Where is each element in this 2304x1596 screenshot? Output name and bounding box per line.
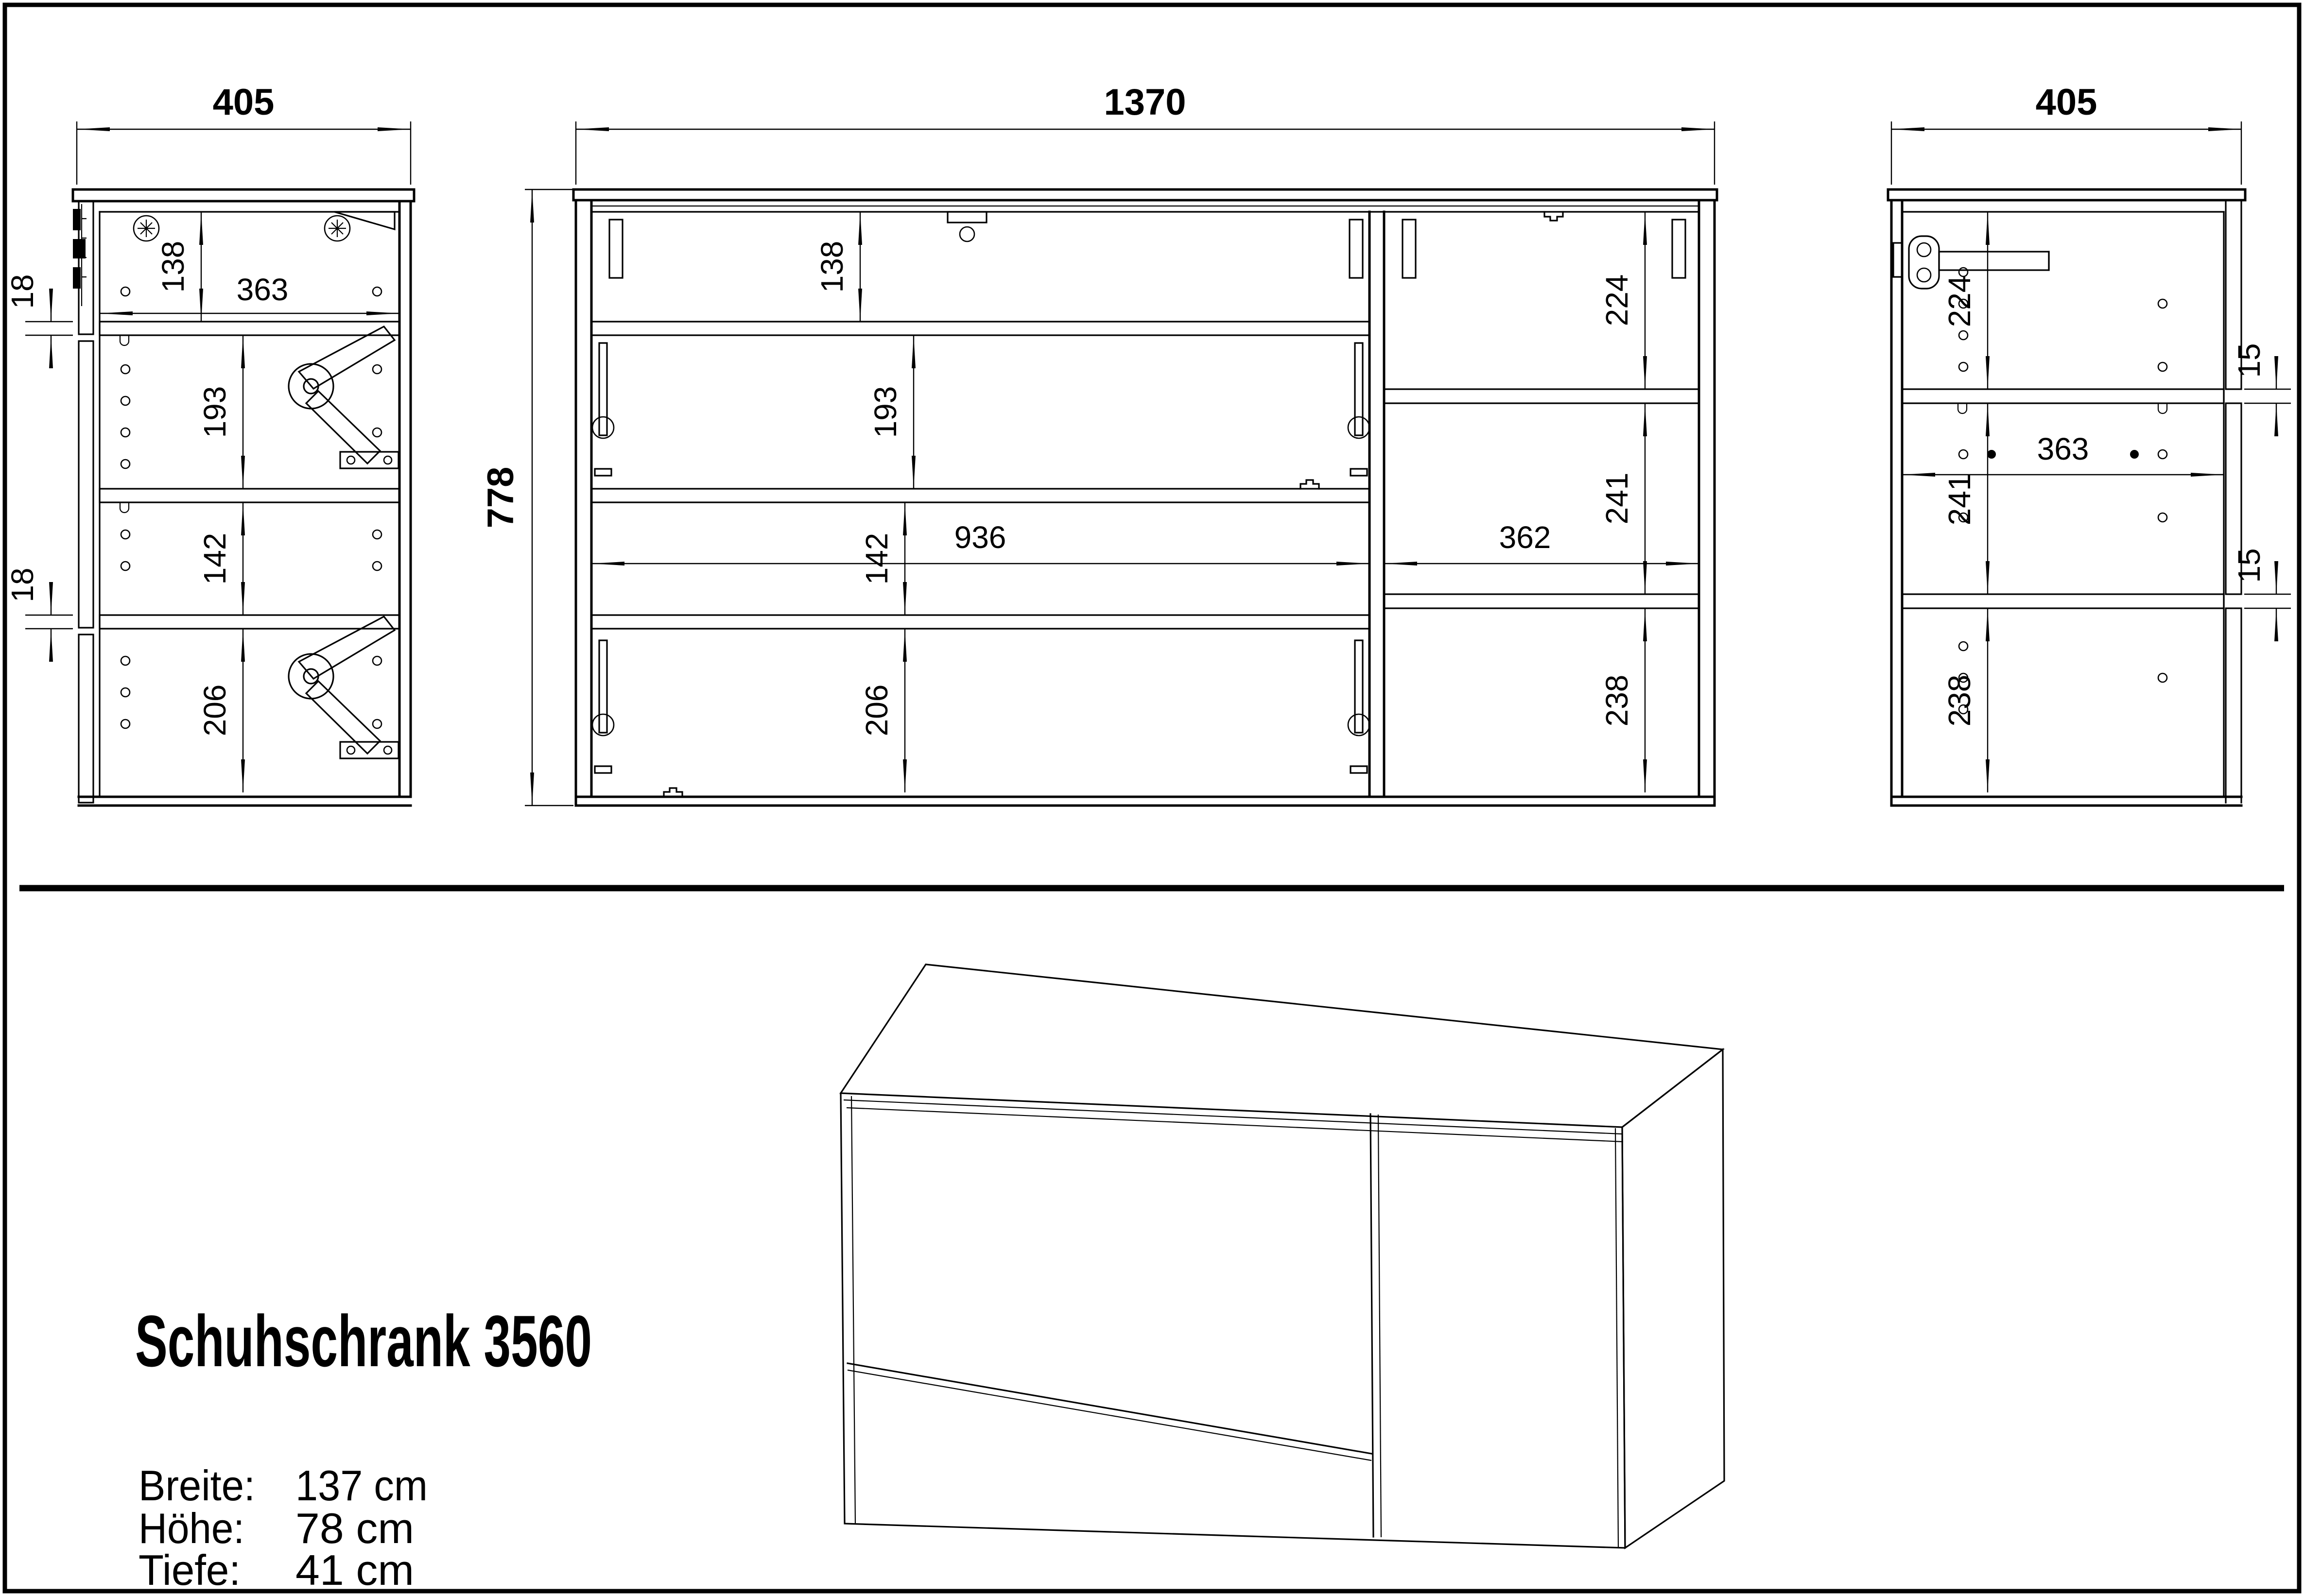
- dim-label-right-gap-top: 15: [2232, 343, 2267, 378]
- dim-label-right-comp3: 238: [1942, 675, 1977, 727]
- dim-label-front-left-interior: 936: [954, 520, 1006, 555]
- dim-label-left-width: 405: [213, 82, 275, 123]
- technical-drawing-page: 405 138 363 18 193 142 18 206: [0, 0, 2304, 1596]
- dim-label-front-comp3: 142: [859, 533, 894, 585]
- dim-label-front-right-comp1: 224: [1599, 275, 1634, 326]
- dim-label-left-comp1: 138: [156, 241, 191, 293]
- dim-label-left-comp2: 193: [197, 386, 232, 438]
- product-title: Schuhschrank 3560: [135, 1300, 592, 1382]
- dim-label-left-interior: 363: [237, 272, 289, 307]
- dim-label-front-height: 778: [480, 467, 521, 529]
- dim-label-front-comp2: 193: [868, 386, 903, 438]
- spec-label-tiefe: Tiefe:: [139, 1546, 241, 1594]
- dim-label-front-right-comp2: 241: [1599, 473, 1634, 525]
- drawing-canvas: 405 138 363 18 193 142 18 206: [0, 0, 2304, 1596]
- dim-label-front-width: 1370: [1104, 82, 1186, 123]
- dim-label-front-right-interior: 362: [1499, 520, 1551, 555]
- dim-label-left-gap-bottom: 18: [5, 567, 40, 602]
- spec-value-tiefe: 41 cm: [295, 1546, 414, 1594]
- spec-value-hoehe: 78 cm: [295, 1504, 414, 1552]
- dim-label-right-comp2: 241: [1942, 474, 1977, 526]
- dim-label-front-comp1: 138: [814, 241, 849, 293]
- spec-label-hoehe: Höhe:: [139, 1504, 244, 1552]
- spec-value-breite: 137 cm: [295, 1461, 428, 1510]
- spec-label-breite: Breite:: [139, 1461, 255, 1510]
- dim-label-left-comp4: 206: [197, 685, 232, 737]
- dim-label-right-gap-bottom: 15: [2232, 548, 2267, 583]
- dim-label-front-right-comp3: 238: [1599, 675, 1634, 727]
- dim-label-front-comp4: 206: [859, 685, 894, 737]
- dim-label-left-gap-top: 18: [5, 274, 40, 309]
- dim-label-left-comp3: 142: [197, 533, 232, 585]
- dim-label-right-width: 405: [2036, 82, 2097, 123]
- dim-label-right-interior: 363: [2037, 431, 2089, 466]
- dim-label-right-comp1: 224: [1942, 275, 1977, 327]
